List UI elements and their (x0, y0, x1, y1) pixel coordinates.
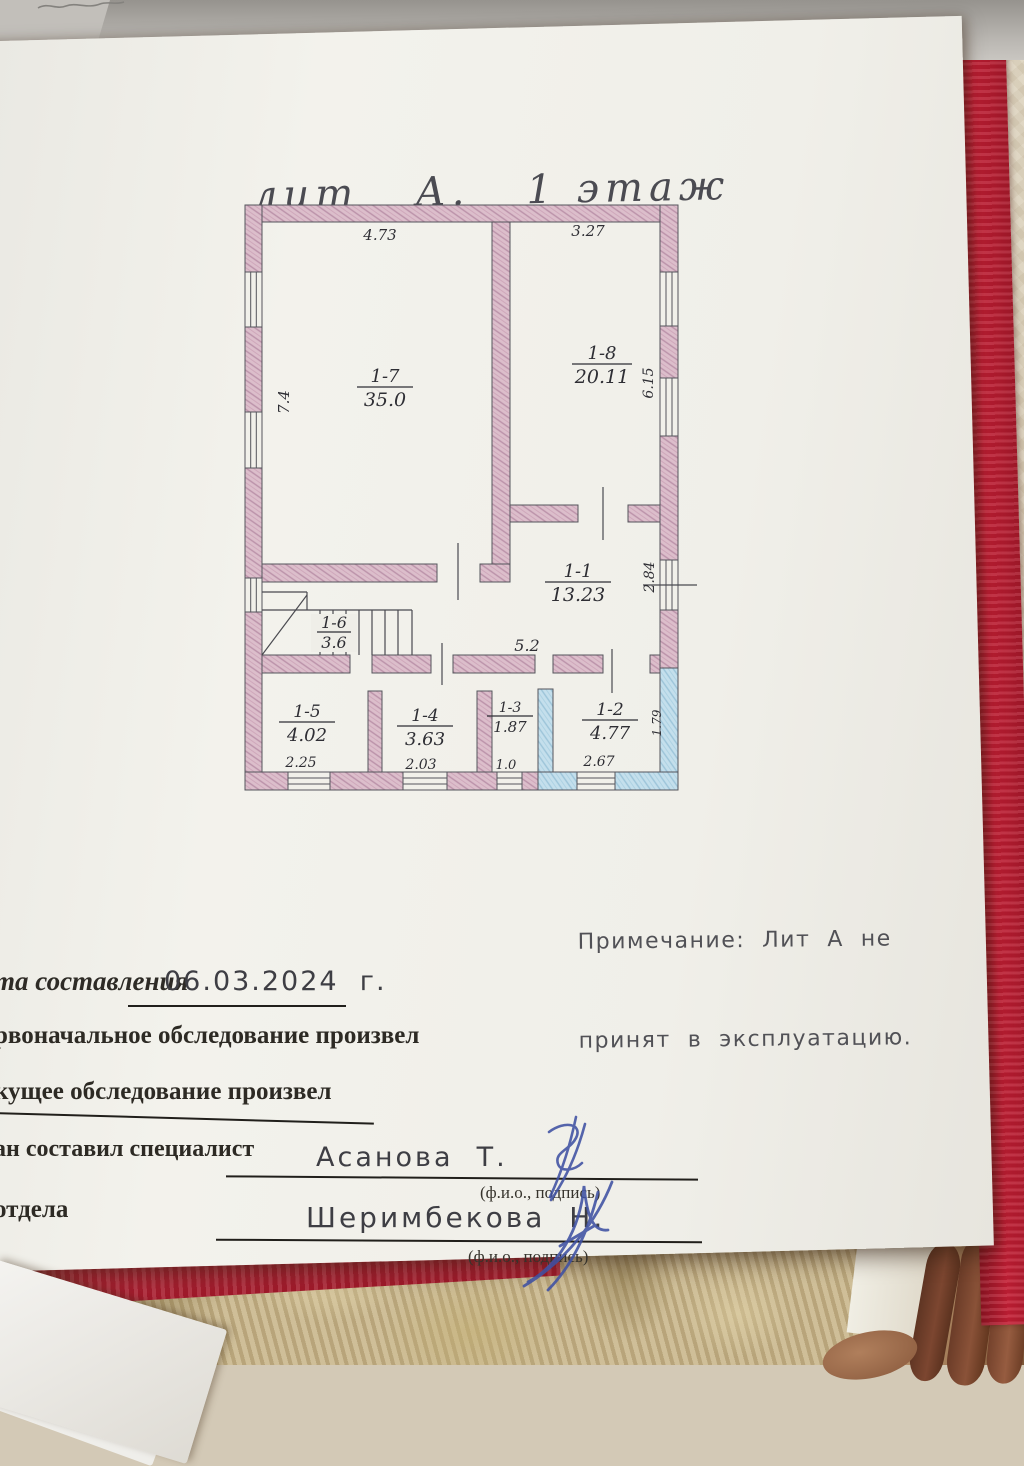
note-line2: принят в эксплуатацию. (579, 1021, 913, 1057)
fio-caption-1: (ф.и.о., подпись) (480, 1183, 600, 1203)
room-label-1-8: 1-8 20.11 (572, 343, 632, 388)
dim-bottom-3: 1.0 (496, 758, 517, 773)
wall-corridor-a (262, 655, 350, 673)
room-area: 20.11 (574, 366, 629, 388)
interior-walls (262, 222, 660, 772)
window (660, 378, 678, 436)
date-label: та составления (0, 966, 188, 997)
floor-plan: 1-7 35.0 1-8 20.11 1-1 13.23 1-6 3.6 1-5… (235, 165, 705, 810)
note-block: Примечание: Лит А не принят в эксплуатац… (577, 856, 913, 1090)
dim-corridor: 5.2 (514, 636, 539, 655)
window (288, 772, 330, 790)
wall-corridor-e (650, 655, 660, 673)
wall-15-14 (368, 691, 382, 772)
room-label-1-2: 1-2 4.77 (582, 700, 638, 744)
window (497, 772, 522, 790)
room-area: 35.0 (364, 389, 406, 411)
room-area: 13.23 (551, 584, 605, 606)
fio-caption-2: (ф.и.о., подпись) (468, 1247, 588, 1267)
room-number: 1-4 (411, 706, 438, 726)
note-line1: Примечание: Лит А не (577, 922, 911, 958)
window (577, 772, 615, 790)
room-area: 4.02 (286, 725, 327, 746)
room-label-1-4: 1-4 3.63 (397, 706, 453, 750)
wall-room18-bottom-a (510, 505, 578, 522)
room-label-1-7: 1-7 35.0 (357, 366, 413, 411)
window (245, 412, 262, 468)
wall-top (245, 205, 678, 222)
room-area: 1.87 (493, 718, 527, 736)
date-value: 06.03.2024 г. (164, 966, 387, 997)
dim-left: 7.4 (275, 390, 293, 414)
room-area: 3.6 (321, 633, 346, 652)
room-area: 4.77 (589, 723, 631, 744)
wall-corridor-b (372, 655, 431, 673)
wall-middle-vertical (492, 222, 510, 582)
date-underline (128, 1005, 346, 1007)
dim-right-upper: 6.15 (641, 367, 657, 398)
wall-corridor-d (553, 655, 603, 673)
initial-survey-line: рвоначальное обследование произвел (0, 1022, 419, 1050)
room-number: 1-8 (588, 343, 617, 364)
room-number: 1-2 (596, 700, 623, 720)
window (403, 772, 447, 790)
room-number: 1-1 (564, 561, 593, 582)
dim-top-right: 3.27 (571, 222, 605, 240)
dim-right-mid: 2.84 (642, 561, 658, 593)
wall-room18-bottom-b (628, 505, 660, 522)
room-number: 1-6 (321, 613, 347, 632)
stairs-diagonal (262, 595, 307, 655)
department-name: Шеримбекова Н. (306, 1201, 605, 1234)
room-label-1-3: 1-3 1.87 (487, 700, 533, 736)
room-number: 1-3 (499, 700, 522, 716)
room-number: 1-5 (293, 702, 320, 722)
dim-bottom-2: 2.03 (404, 757, 436, 773)
dim-bottom-1: 2.25 (284, 755, 316, 771)
room-area: 3.63 (405, 729, 445, 750)
specialist-label: ан составил специалист (0, 1136, 254, 1163)
dimension-labels: 4.73 3.27 7.4 6.15 2.84 5.2 2.25 2.03 1.… (275, 222, 664, 773)
department-label: отдела (0, 1196, 68, 1224)
window (245, 578, 262, 612)
dim-bottom-4: 2.67 (582, 754, 614, 770)
room-label-1-1: 1-1 13.23 (545, 561, 611, 606)
wall-corridor-c (453, 655, 535, 673)
room-number: 1-7 (371, 366, 401, 387)
dim-right-lower: 1.79 (650, 709, 664, 736)
wall-14-13 (477, 691, 492, 772)
window (660, 272, 678, 326)
specialist-name: Асанова Т. (316, 1142, 508, 1173)
wall-13-12-blue (538, 689, 553, 772)
window (245, 272, 262, 327)
current-survey-line: кущее обследование произвел (0, 1078, 332, 1106)
wall-room17-bottom-a (262, 564, 437, 582)
dim-top-left: 4.73 (362, 226, 396, 244)
room-label-1-6: 1-6 3.6 (311, 613, 357, 652)
wall-room17-bottom-b (480, 564, 510, 582)
room-label-1-5: 1-5 4.02 (279, 702, 335, 746)
